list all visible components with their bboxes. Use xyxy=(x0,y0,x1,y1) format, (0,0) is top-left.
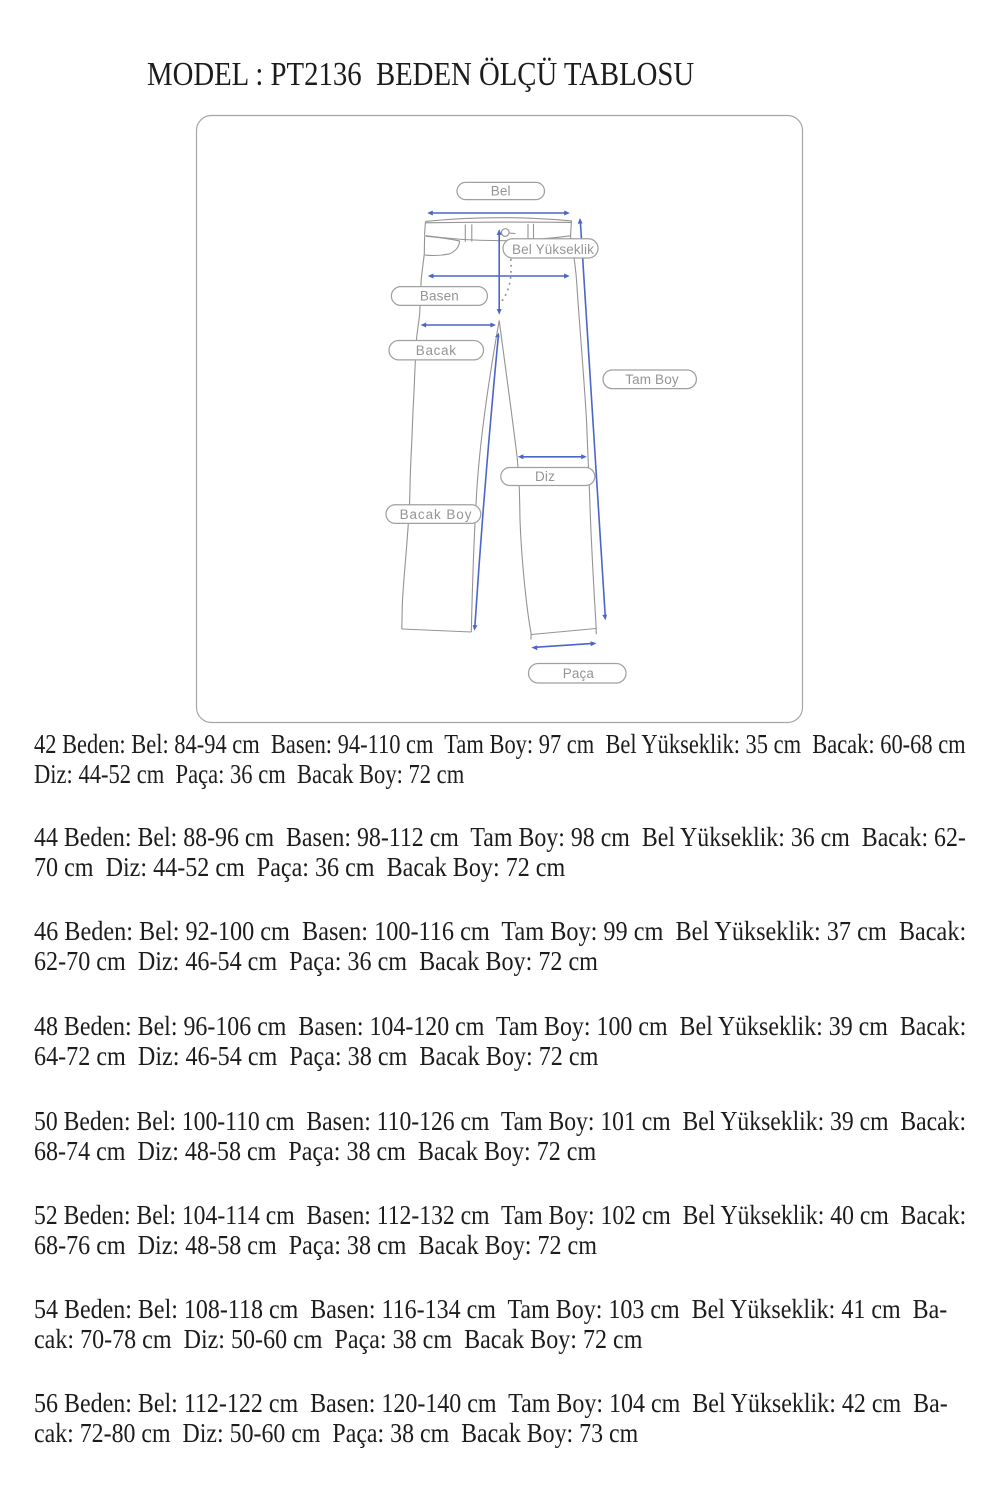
svg-text:Paça: Paça xyxy=(563,666,595,681)
svg-text:Basen: Basen xyxy=(420,289,459,304)
svg-text:Bacak Boy: Bacak Boy xyxy=(400,507,473,522)
svg-text:Bel Yükseklik: Bel Yükseklik xyxy=(512,242,594,257)
svg-text:Bel: Bel xyxy=(491,184,511,199)
svg-text:Tam Boy: Tam Boy xyxy=(625,372,679,387)
svg-text:Bacak: Bacak xyxy=(416,343,457,358)
svg-text:Diz: Diz xyxy=(535,469,555,484)
